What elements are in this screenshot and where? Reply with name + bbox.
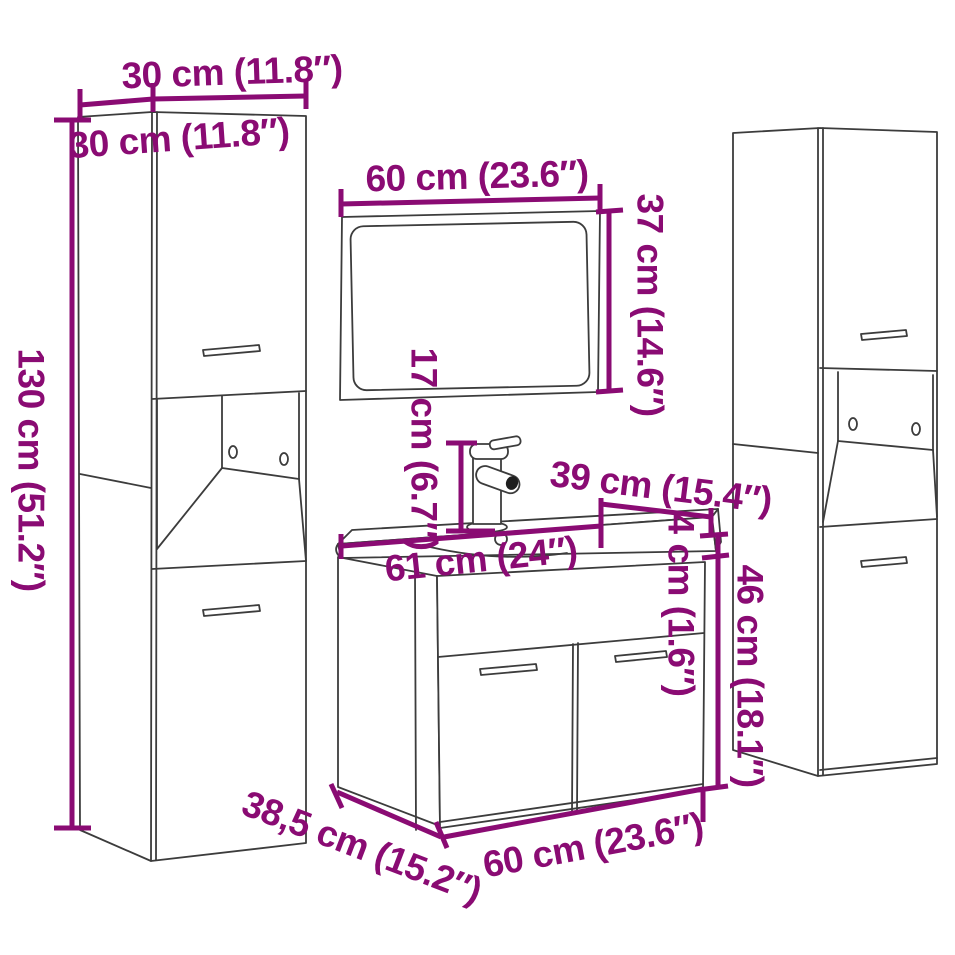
dim-label-mirror-width: 60 cm (23.6″) xyxy=(365,155,589,198)
wall-mirror xyxy=(340,211,600,400)
dim-label-side-cabinet-width: 30 cm (11.8″) xyxy=(121,50,343,95)
dim-label-side-cabinet-height: 130 cm (51.2″) xyxy=(13,348,50,591)
dim-label-mirror-height: 37 cm (14.6″) xyxy=(632,193,669,416)
bathroom-furniture-dimension-diagram: 30 cm (11.8″) 30 cm (11.8″) 130 cm (51.2… xyxy=(0,0,955,955)
dim-label-basin-thickness: 4 cm (1.6″) xyxy=(663,514,700,697)
vanity-cabinet xyxy=(338,557,705,830)
faucet xyxy=(467,436,522,532)
left-side-cabinet xyxy=(78,112,306,861)
dim-label-faucet-height: 17 cm (6.7″) xyxy=(406,348,443,551)
faucet-lever xyxy=(489,436,521,450)
dim-label-vanity-height: 46 cm (18.1″) xyxy=(732,564,769,787)
